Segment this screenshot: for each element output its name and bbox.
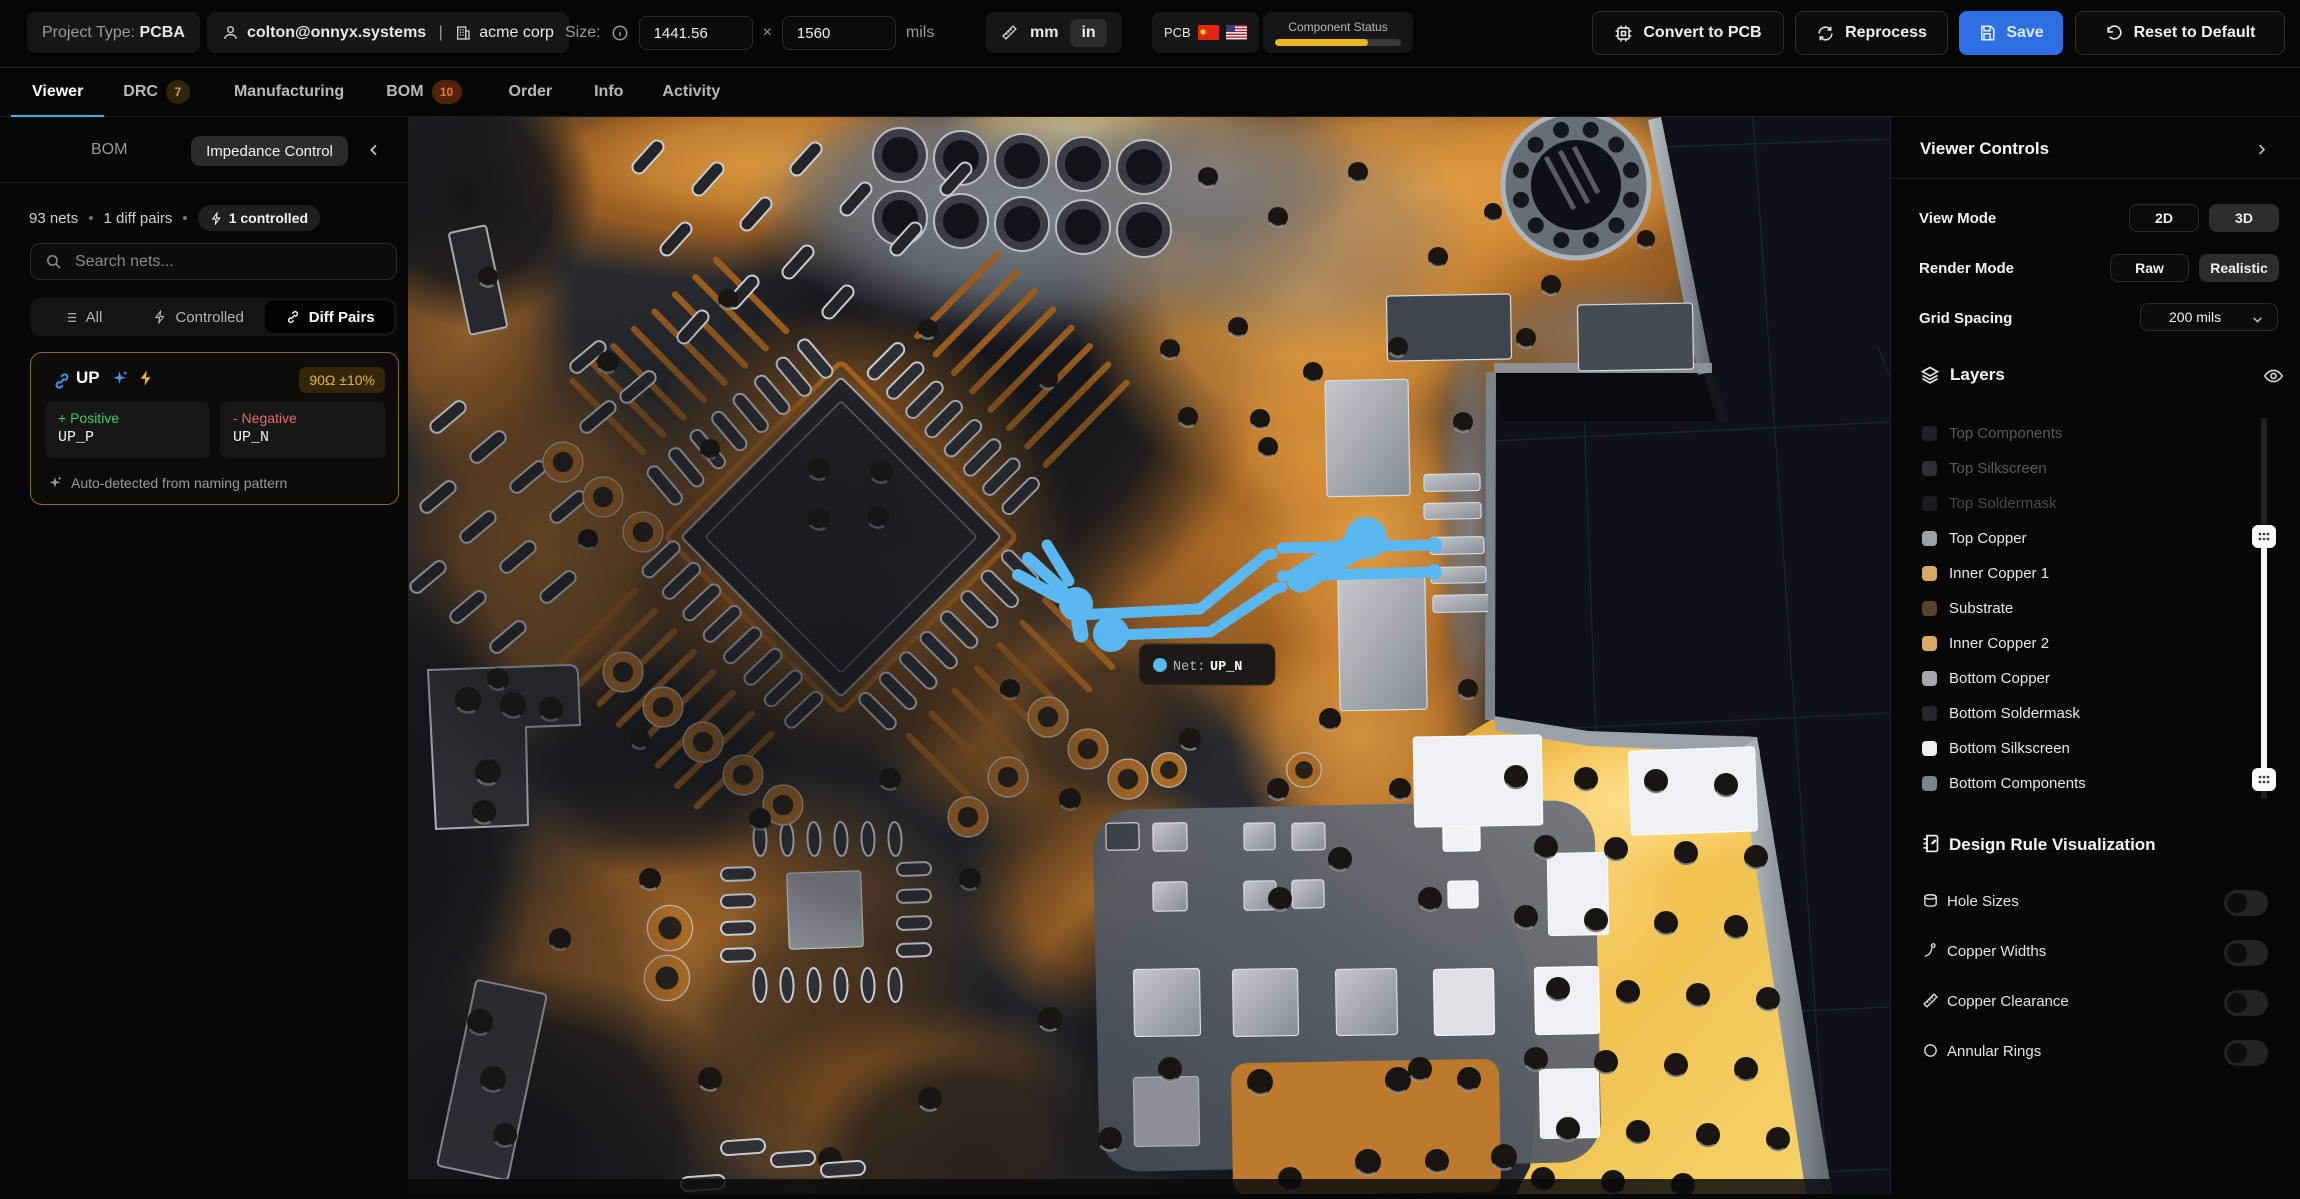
svg-text:UP_N: UP_N (1210, 660, 1242, 675)
svg-text:Net:: Net: (1173, 660, 1205, 675)
